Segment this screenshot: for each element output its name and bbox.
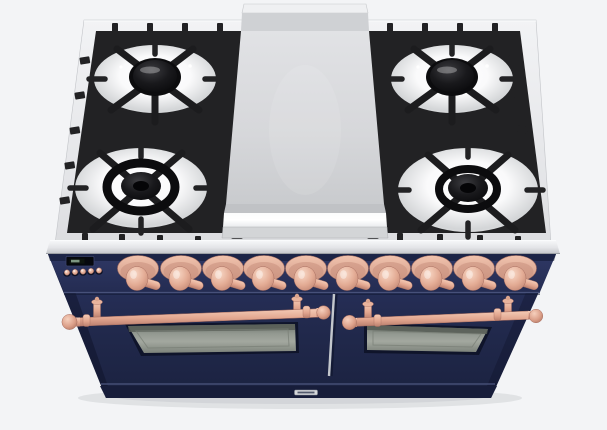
oven-window-left xyxy=(125,322,299,356)
display-glow xyxy=(71,260,80,263)
product-image: Freestanding dual-fuel range viewed from… xyxy=(0,0,607,430)
burner-back-left xyxy=(129,58,181,96)
griddle-front-shine xyxy=(223,213,387,227)
handle-finial xyxy=(62,314,77,329)
griddle-back-lip-face xyxy=(241,13,369,31)
handle-finial xyxy=(529,309,543,323)
range-render xyxy=(0,0,607,430)
griddle xyxy=(222,4,388,239)
clock-display xyxy=(66,257,94,267)
cooktop-front-rail xyxy=(46,240,560,254)
handle-finial xyxy=(317,306,331,320)
handle-finial xyxy=(342,315,357,330)
griddle-back-lip-top xyxy=(242,4,368,13)
oven-body xyxy=(48,254,556,398)
griddle-bevel xyxy=(224,204,386,213)
burner-back-right xyxy=(426,58,478,96)
brand-badge xyxy=(295,390,318,395)
griddle-front-edge xyxy=(222,227,388,238)
oven-window-right xyxy=(364,323,492,355)
